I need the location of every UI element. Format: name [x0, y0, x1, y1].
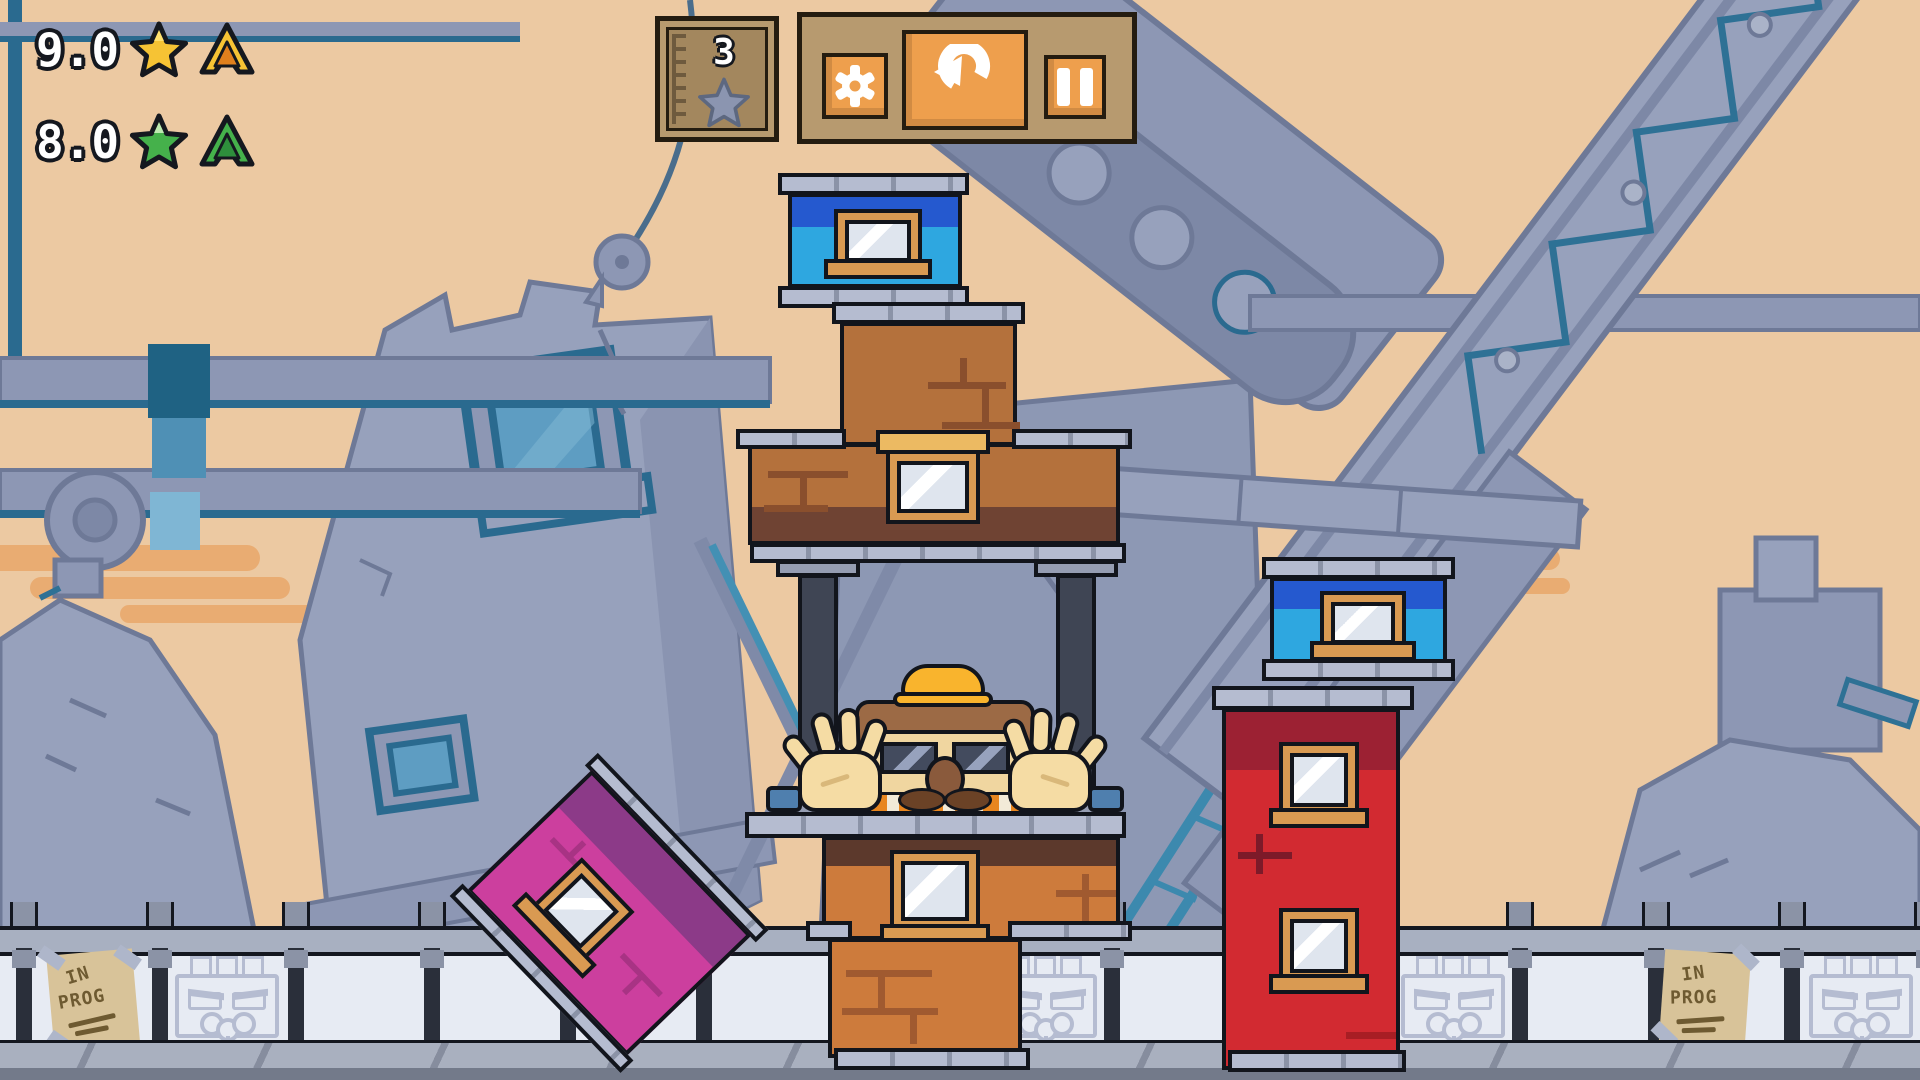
block-base-cap: [834, 1048, 1030, 1070]
block-cap: [832, 302, 1025, 324]
poster-text-line2: PROG: [57, 985, 107, 1014]
floor-slab: [745, 812, 1126, 838]
block-cap: [778, 173, 969, 195]
block-cap: [1262, 659, 1455, 681]
hud-stat-green: 8.0: [36, 110, 255, 174]
mustache: [898, 788, 946, 812]
block-cap: [1212, 686, 1414, 710]
green-score-text: 8.0: [36, 119, 119, 165]
gold-star-icon: [127, 18, 191, 82]
window-sill: [824, 259, 932, 279]
gear-icon: [833, 64, 877, 108]
settings-button[interactable]: [822, 53, 888, 119]
poster-text-line1: IN: [1680, 962, 1706, 986]
ledge-cap: [1008, 921, 1132, 941]
green-star-icon: [127, 110, 191, 174]
block-base-cap: [1228, 1050, 1406, 1072]
block-blue-roof-right[interactable]: [1270, 577, 1447, 671]
ruler-icon: [672, 34, 692, 124]
hard-hat-brim: [893, 692, 993, 707]
face-poster: [1398, 956, 1508, 1042]
window-sill: [1269, 974, 1369, 994]
face-poster: [1806, 956, 1916, 1042]
height-meter-panel: 3: [666, 27, 768, 131]
block-blue-roof-center[interactable]: [788, 193, 962, 288]
ledge-cap: [736, 429, 846, 449]
block-cap: [1262, 557, 1455, 579]
green-arrow-up-icon: [199, 114, 255, 170]
in-progress-poster: IN PROG: [1659, 949, 1751, 1047]
restart-button[interactable]: [902, 30, 1028, 130]
window-sill: [1310, 641, 1416, 661]
window: [1279, 908, 1359, 984]
poster-text-line1: IN: [63, 962, 92, 989]
in-progress-poster: IN PROG: [46, 948, 140, 1047]
character-hand-left: [790, 706, 894, 816]
pause-icon: [1052, 68, 1098, 106]
block-brick-base[interactable]: [828, 938, 1022, 1058]
height-star-icon: [693, 74, 755, 132]
height-meter: 3: [655, 16, 779, 142]
block-red-tower[interactable]: [1222, 708, 1400, 1070]
character-hand-right: [996, 706, 1100, 816]
block-brown-upper[interactable]: [840, 322, 1017, 446]
hud-stat-gold: 9.0: [36, 18, 255, 82]
pause-button[interactable]: [1044, 55, 1106, 119]
window-sill: [1269, 808, 1369, 828]
poster-text-line2: PROG: [1670, 987, 1718, 1009]
window: [1279, 742, 1359, 818]
rotate-ccw-icon: [929, 44, 1001, 116]
height-meter-value: 3: [699, 32, 749, 73]
game-screen: IN PROG IN PROG: [0, 0, 1920, 1080]
ledge-cap: [1012, 429, 1132, 449]
gold-arrow-up-icon: [199, 22, 255, 78]
gold-score-text: 9.0: [36, 27, 119, 73]
face-poster: [172, 956, 282, 1042]
window: [890, 850, 980, 932]
toolbar-panel: [797, 12, 1137, 144]
window: [886, 450, 980, 524]
mustache: [944, 788, 992, 812]
